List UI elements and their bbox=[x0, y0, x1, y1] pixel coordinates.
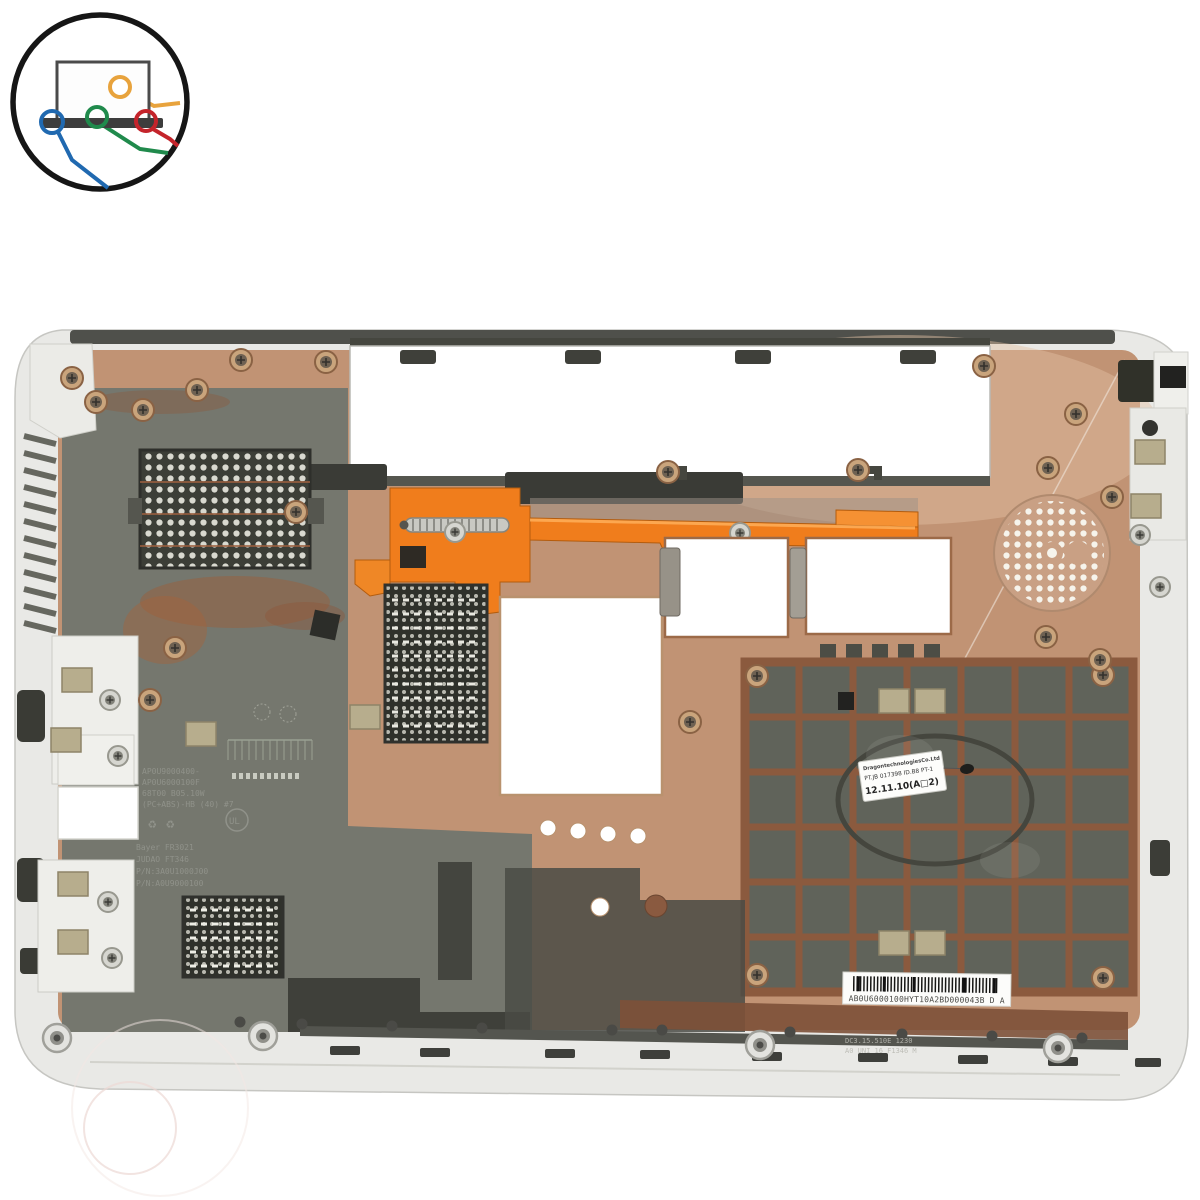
molded-line: (PC+ABS)-HB (40) #7 bbox=[142, 800, 234, 809]
drive-bay-cutout bbox=[500, 597, 662, 795]
speaker-grille bbox=[994, 495, 1110, 611]
foam-pad bbox=[186, 722, 216, 746]
molded-line: Bayer FR3021 bbox=[136, 843, 194, 852]
side-port-cutout bbox=[17, 690, 45, 742]
hinge-screw-ring bbox=[43, 1024, 71, 1052]
screw-icon bbox=[445, 522, 465, 542]
screw-icon bbox=[108, 746, 128, 766]
battery-bay-cutout bbox=[350, 346, 990, 477]
foam-pad bbox=[62, 668, 92, 692]
foam-pad bbox=[879, 931, 909, 955]
screw-icon bbox=[102, 948, 122, 968]
photo-canvas: DragontechnologiesCo.Ltd PT.JB 017398 ID… bbox=[0, 0, 1200, 1200]
molded-line: AP0U6000100F bbox=[142, 778, 200, 787]
standoff-leg bbox=[660, 548, 680, 616]
screw-icon bbox=[1092, 967, 1114, 989]
laptop-bottom-case-photo: DragontechnologiesCo.Ltd PT.JB 017398 ID… bbox=[0, 0, 1200, 1200]
svg-text:DC3.15.510E 1230: DC3.15.510E 1230 bbox=[845, 1037, 912, 1045]
foam-pad bbox=[58, 930, 88, 954]
foam-pad bbox=[879, 689, 909, 713]
foam-pad bbox=[51, 728, 81, 752]
molded-line: P/N:A0U9000100 bbox=[136, 879, 204, 888]
small-mesh-vent bbox=[183, 897, 283, 977]
screw-boss bbox=[645, 895, 667, 917]
barcode-label: AB0U6000100HYT10A2BD000043B D A bbox=[843, 972, 1011, 1006]
svg-text:A0 UNI 16 F1346 M: A0 UNI 16 F1346 M bbox=[845, 1047, 917, 1055]
thermal-paste-smear bbox=[90, 390, 230, 414]
screw-icon bbox=[746, 964, 768, 986]
screw-icon bbox=[164, 637, 186, 659]
molded-line: AP0U9000400- bbox=[142, 767, 200, 776]
ribbed-grid-region bbox=[745, 662, 1133, 992]
foam-pad bbox=[58, 872, 88, 896]
screw-icon bbox=[100, 690, 120, 710]
screw-icon bbox=[1150, 577, 1170, 597]
foam-pad bbox=[915, 689, 945, 713]
hinge-screw-ring bbox=[746, 1031, 774, 1059]
side-slot bbox=[1150, 840, 1170, 876]
ul-logo-text: UL bbox=[229, 817, 240, 827]
recycle-icon: ♻ bbox=[148, 816, 157, 832]
hinge-screw-ring bbox=[1044, 1034, 1072, 1062]
hook-slot bbox=[1160, 366, 1186, 388]
watermark-circle bbox=[84, 1082, 176, 1174]
side-cutout bbox=[58, 787, 138, 839]
recycle-icon: ♻ bbox=[166, 816, 175, 832]
foam-pad bbox=[915, 931, 945, 955]
hinge-screw-ring bbox=[249, 1022, 277, 1050]
round-hole bbox=[591, 898, 609, 916]
dark-arm bbox=[438, 862, 472, 980]
molded-line: JUDAO FT346 bbox=[136, 855, 189, 864]
molded-line: 68T00 B05.10W bbox=[142, 789, 205, 798]
cutout-window bbox=[806, 538, 951, 634]
foam-pad bbox=[1135, 440, 1165, 464]
molded-line: P/N:3A0U1000J00 bbox=[136, 867, 208, 876]
connector-block bbox=[838, 692, 854, 710]
screw-icon bbox=[98, 892, 118, 912]
screw-icon bbox=[746, 665, 768, 687]
standoff-leg bbox=[790, 548, 806, 618]
screw-icon bbox=[139, 689, 161, 711]
middle-mesh-vent bbox=[385, 585, 487, 742]
foam-pad bbox=[1131, 494, 1161, 518]
barcode-stripes bbox=[853, 976, 999, 993]
screw-icon bbox=[1130, 525, 1150, 545]
black-clip bbox=[310, 610, 341, 641]
cutout-window bbox=[665, 538, 788, 637]
corner-bracket bbox=[30, 344, 96, 438]
foam-pad bbox=[350, 705, 380, 729]
